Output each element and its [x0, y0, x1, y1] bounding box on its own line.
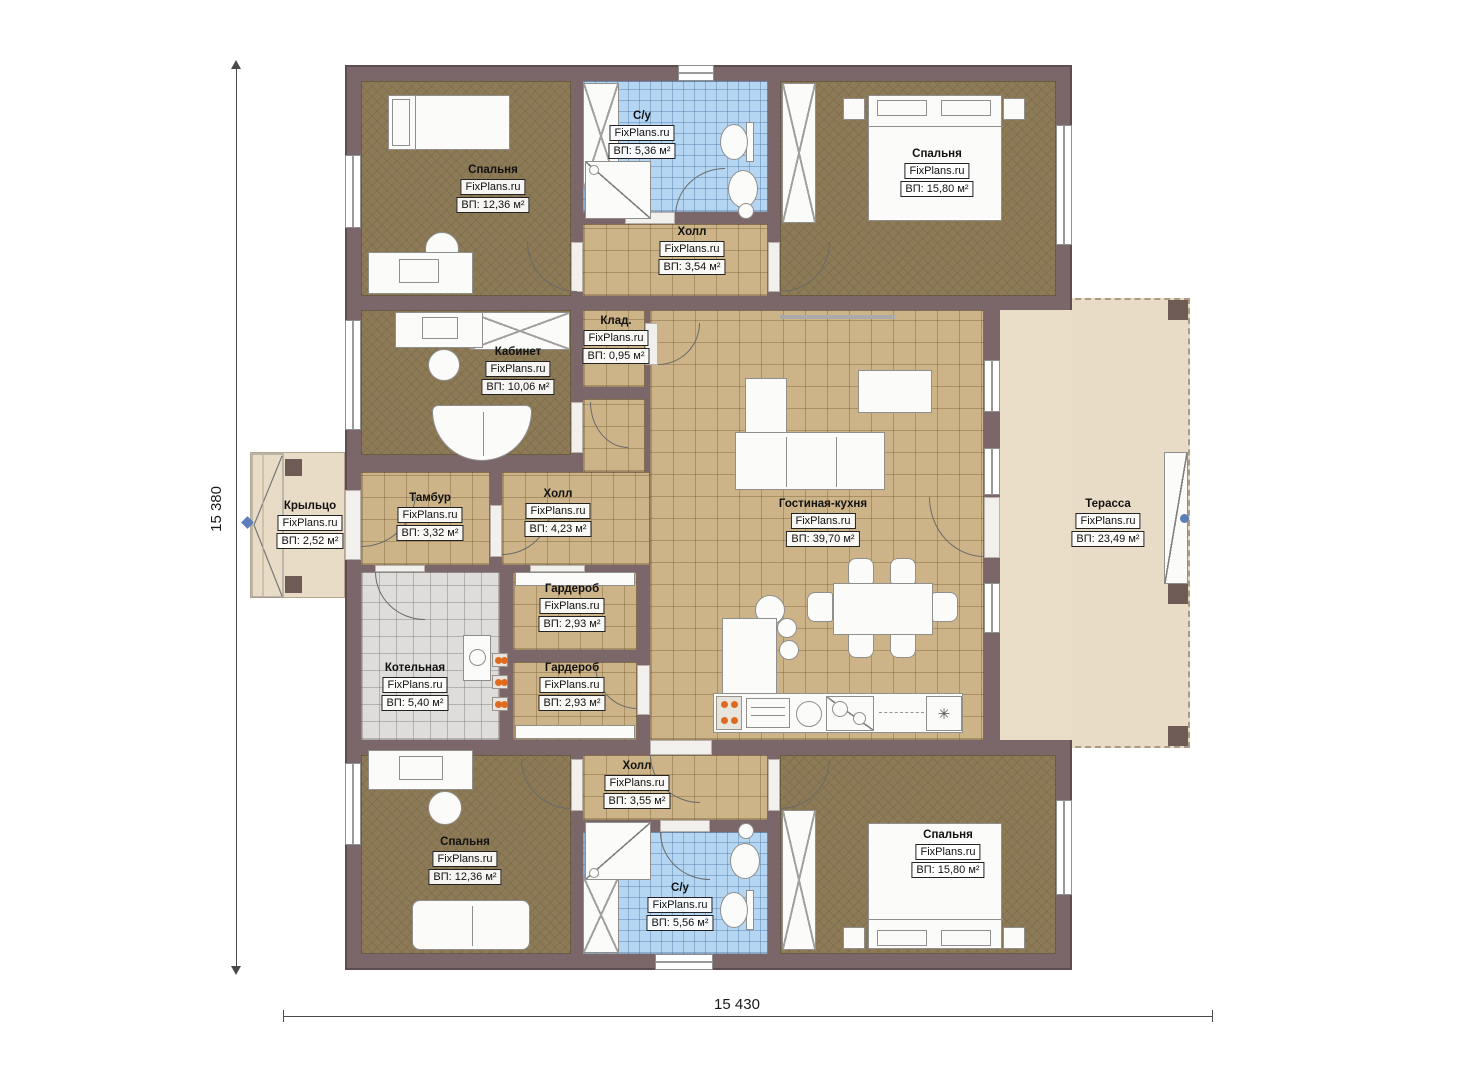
arrow-down-icon — [231, 966, 241, 975]
chair — [890, 558, 916, 584]
porch-post — [285, 576, 302, 593]
window — [345, 320, 361, 430]
room-area: ВП: 5,56 м² — [646, 915, 713, 931]
room-area: ВП: 15,80 м² — [911, 862, 984, 878]
door-opening — [660, 820, 710, 832]
brand-watermark: FixPlans.ru — [397, 507, 462, 523]
sofa — [735, 432, 885, 490]
chair — [848, 558, 874, 584]
room-area: ВП: 4,23 м² — [524, 521, 591, 537]
door-opening — [768, 242, 780, 292]
room-label-su-top: С/у FixPlans.ru ВП: 5,36 м² — [608, 110, 675, 159]
wardrobe-icon — [782, 810, 816, 950]
door-opening — [375, 565, 425, 572]
shower-icon — [585, 822, 651, 880]
brand-watermark: FixPlans.ru — [525, 503, 590, 519]
room-label-kabinet: Кабинет FixPlans.ru ВП: 10,06 м² — [481, 346, 554, 395]
desk — [368, 750, 473, 790]
room-area: ВП: 3,32 м² — [396, 525, 463, 541]
room-name: Гостиная-кухня — [779, 498, 867, 511]
room-label-hall-mid: Холл FixPlans.ru ВП: 4,23 м² — [524, 488, 591, 537]
sofa-line — [836, 437, 837, 487]
desk — [368, 252, 473, 294]
brand-watermark: FixPlans.ru — [539, 598, 604, 614]
brand-watermark: FixPlans.ru — [915, 844, 980, 860]
room-area: ВП: 10,06 м² — [481, 379, 554, 395]
dimension-line-vertical — [236, 68, 237, 968]
room-name: Котельная — [385, 662, 445, 675]
entrance-door-opening — [345, 490, 361, 560]
terrace-door-opening — [984, 497, 1000, 558]
arrow-up-icon — [231, 60, 241, 69]
sofa-line — [472, 906, 473, 946]
shower-head-icon — [589, 868, 599, 878]
toilet-icon — [720, 124, 748, 160]
pillow — [392, 99, 410, 146]
window — [984, 448, 1000, 495]
nightstand — [843, 927, 865, 949]
room-area: ВП: 15,80 м² — [900, 181, 973, 197]
room-area: ВП: 3,54 м² — [658, 259, 725, 275]
stove-icon — [716, 696, 742, 730]
chair — [890, 632, 916, 658]
chair — [428, 791, 462, 825]
room-name: Спальня — [912, 148, 962, 161]
sink-icon — [796, 701, 822, 727]
pillow — [877, 100, 927, 116]
room-name: С/у — [633, 110, 651, 123]
tv-bench — [780, 315, 895, 319]
bed-line — [869, 126, 1003, 127]
brand-watermark: FixPlans.ru — [277, 515, 342, 531]
dimension-tick — [283, 1010, 284, 1022]
pillow — [877, 930, 927, 946]
dimension-width-label: 15 430 — [714, 996, 760, 1013]
chair — [848, 632, 874, 658]
pillow — [941, 100, 991, 116]
toilet-icon — [720, 892, 748, 928]
drain-icon — [738, 823, 754, 839]
room-name: Кабинет — [495, 346, 542, 359]
plate-icon — [779, 640, 799, 660]
room-name: Холл — [544, 488, 573, 501]
room-label-kotelnaya: Котельная FixPlans.ru ВП: 5,40 м² — [381, 662, 448, 711]
sofa — [412, 900, 530, 950]
room-name: Клад. — [600, 315, 631, 328]
office-chair — [428, 349, 460, 381]
room-name: Терасса — [1085, 498, 1131, 511]
door-opening — [571, 759, 583, 811]
room-label-garderob-1: Гардероб FixPlans.ru ВП: 2,93 м² — [538, 583, 605, 632]
brand-watermark: FixPlans.ru — [485, 361, 550, 377]
wardrobe-icon — [782, 83, 816, 223]
terrace-post — [1168, 584, 1188, 604]
brand-watermark: FixPlans.ru — [604, 775, 669, 791]
door-opening — [637, 665, 650, 715]
shower-icon — [585, 161, 651, 219]
window — [678, 65, 714, 81]
terrace-post — [1168, 726, 1188, 746]
computer-icon — [422, 317, 458, 339]
window — [984, 583, 1000, 633]
room-label-klad: Клад. FixPlans.ru ВП: 0,95 м² — [582, 315, 649, 364]
room-name: Спальня — [440, 836, 490, 849]
door-opening — [530, 565, 585, 572]
radiator-icon — [492, 697, 508, 711]
room-label-bedroom-br: Спальня FixPlans.ru ВП: 15,80 м² — [911, 829, 984, 878]
counter-divider — [879, 712, 924, 713]
desk — [395, 312, 483, 348]
room-label-bedroom-bl: Спальня FixPlans.ru ВП: 12,36 м² — [428, 836, 501, 885]
bed-line — [415, 96, 416, 151]
shelving — [515, 725, 635, 739]
room-area: ВП: 23,49 м² — [1071, 531, 1144, 547]
dining-table — [833, 583, 933, 635]
brand-watermark: FixPlans.ru — [583, 330, 648, 346]
brand-watermark: FixPlans.ru — [659, 241, 724, 257]
printer-icon — [399, 259, 439, 283]
radiator-icon — [492, 675, 508, 689]
nightstand — [1003, 927, 1025, 949]
chair — [807, 592, 833, 622]
room-name: Холл — [623, 760, 652, 773]
sink-icon — [730, 843, 760, 879]
room-area: ВП: 39,70 м² — [786, 531, 859, 547]
window — [984, 360, 1000, 412]
floor-plan-canvas: ✳ — [0, 0, 1474, 1080]
dimension-line-horizontal — [283, 1016, 1213, 1017]
room-name: Гардероб — [545, 662, 599, 675]
window — [1056, 125, 1072, 245]
room-name: Спальня — [923, 829, 973, 842]
window — [655, 954, 713, 970]
wardrobe-icon — [470, 312, 570, 350]
bed — [388, 95, 510, 150]
room-area: ВП: 2,93 м² — [538, 695, 605, 711]
brand-watermark: FixPlans.ru — [790, 513, 855, 529]
nightstand — [1003, 98, 1025, 120]
room-label-porch: Крыльцо FixPlans.ru ВП: 2,52 м² — [276, 500, 343, 549]
room-area: ВП: 3,55 м² — [603, 793, 670, 809]
plate-icon — [777, 618, 797, 638]
porch-post — [285, 459, 302, 476]
entry-marker — [1180, 514, 1189, 523]
room-area: ВП: 5,36 м² — [608, 143, 675, 159]
kitchen-counter: ✳ — [713, 693, 963, 733]
room-area: ВП: 5,40 м² — [381, 695, 448, 711]
room-label-tambur: Тамбур FixPlans.ru ВП: 3,32 м² — [396, 492, 463, 541]
wardrobe-icon — [583, 877, 619, 953]
dishwasher-icon — [746, 698, 790, 728]
radiator-icon — [492, 653, 508, 667]
kitchen-counter — [722, 618, 777, 696]
room-area: ВП: 12,36 м² — [456, 197, 529, 213]
brand-watermark: FixPlans.ru — [539, 677, 604, 693]
room-label-garderob-2: Гардероб FixPlans.ru ВП: 2,93 м² — [538, 662, 605, 711]
table — [858, 370, 932, 413]
pillow — [941, 930, 991, 946]
door-opening — [768, 759, 780, 811]
room-label-bedroom-tr: Спальня FixPlans.ru ВП: 15,80 м² — [900, 148, 973, 197]
brand-watermark: FixPlans.ru — [647, 897, 712, 913]
brand-watermark: FixPlans.ru — [1075, 513, 1140, 529]
room-label-hall-bottom: Холл FixPlans.ru ВП: 3,55 м² — [603, 760, 670, 809]
terrace-notch-floor — [1000, 310, 1072, 740]
drain-icon — [738, 203, 754, 219]
terrace-post — [1168, 300, 1188, 320]
dimension-tick — [1212, 1010, 1213, 1022]
dimension-height-label: 15 380 — [208, 486, 225, 532]
room-area: ВП: 2,52 м² — [276, 533, 343, 549]
window — [1056, 800, 1072, 895]
room-name: Спальня — [468, 164, 518, 177]
room-label-terrace: Терасса FixPlans.ru ВП: 23,49 м² — [1071, 498, 1144, 547]
brand-watermark: FixPlans.ru — [382, 677, 447, 693]
brand-watermark: FixPlans.ru — [904, 163, 969, 179]
brand-watermark: FixPlans.ru — [432, 851, 497, 867]
sofa-line — [483, 412, 484, 456]
fridge-icon: ✳ — [926, 696, 962, 731]
brand-watermark: FixPlans.ru — [609, 125, 674, 141]
hob-icon — [826, 696, 874, 731]
room-name: Тамбур — [409, 492, 451, 505]
room-label-su-bottom: С/у FixPlans.ru ВП: 5,56 м² — [646, 882, 713, 931]
room-area: ВП: 0,95 м² — [582, 348, 649, 364]
printer-icon — [399, 756, 443, 780]
room-name: Крыльцо — [284, 500, 336, 513]
room-area: ВП: 12,36 м² — [428, 869, 501, 885]
door-opening — [571, 402, 583, 453]
room-area: ВП: 2,93 м² — [538, 616, 605, 632]
chair — [932, 592, 958, 622]
room-label-living: Гостиная-кухня FixPlans.ru ВП: 39,70 м² — [779, 498, 867, 547]
room-name: Гардероб — [545, 583, 599, 596]
shower-head-icon — [589, 165, 599, 175]
door-opening — [650, 740, 712, 755]
window — [345, 763, 361, 845]
room-label-bedroom-tl: Спальня FixPlans.ru ВП: 12,36 м² — [456, 164, 529, 213]
sofa-line — [786, 437, 787, 487]
room-name: С/у — [671, 882, 689, 895]
room-name: Холл — [678, 226, 707, 239]
nightstand — [843, 98, 865, 120]
room-label-hall-top: Холл FixPlans.ru ВП: 3,54 м² — [658, 226, 725, 275]
boiler-icon — [463, 635, 491, 681]
bed-line — [869, 919, 1003, 920]
door-opening — [490, 505, 502, 557]
snowflake-icon: ✳ — [938, 705, 951, 723]
brand-watermark: FixPlans.ru — [460, 179, 525, 195]
window — [345, 155, 361, 228]
